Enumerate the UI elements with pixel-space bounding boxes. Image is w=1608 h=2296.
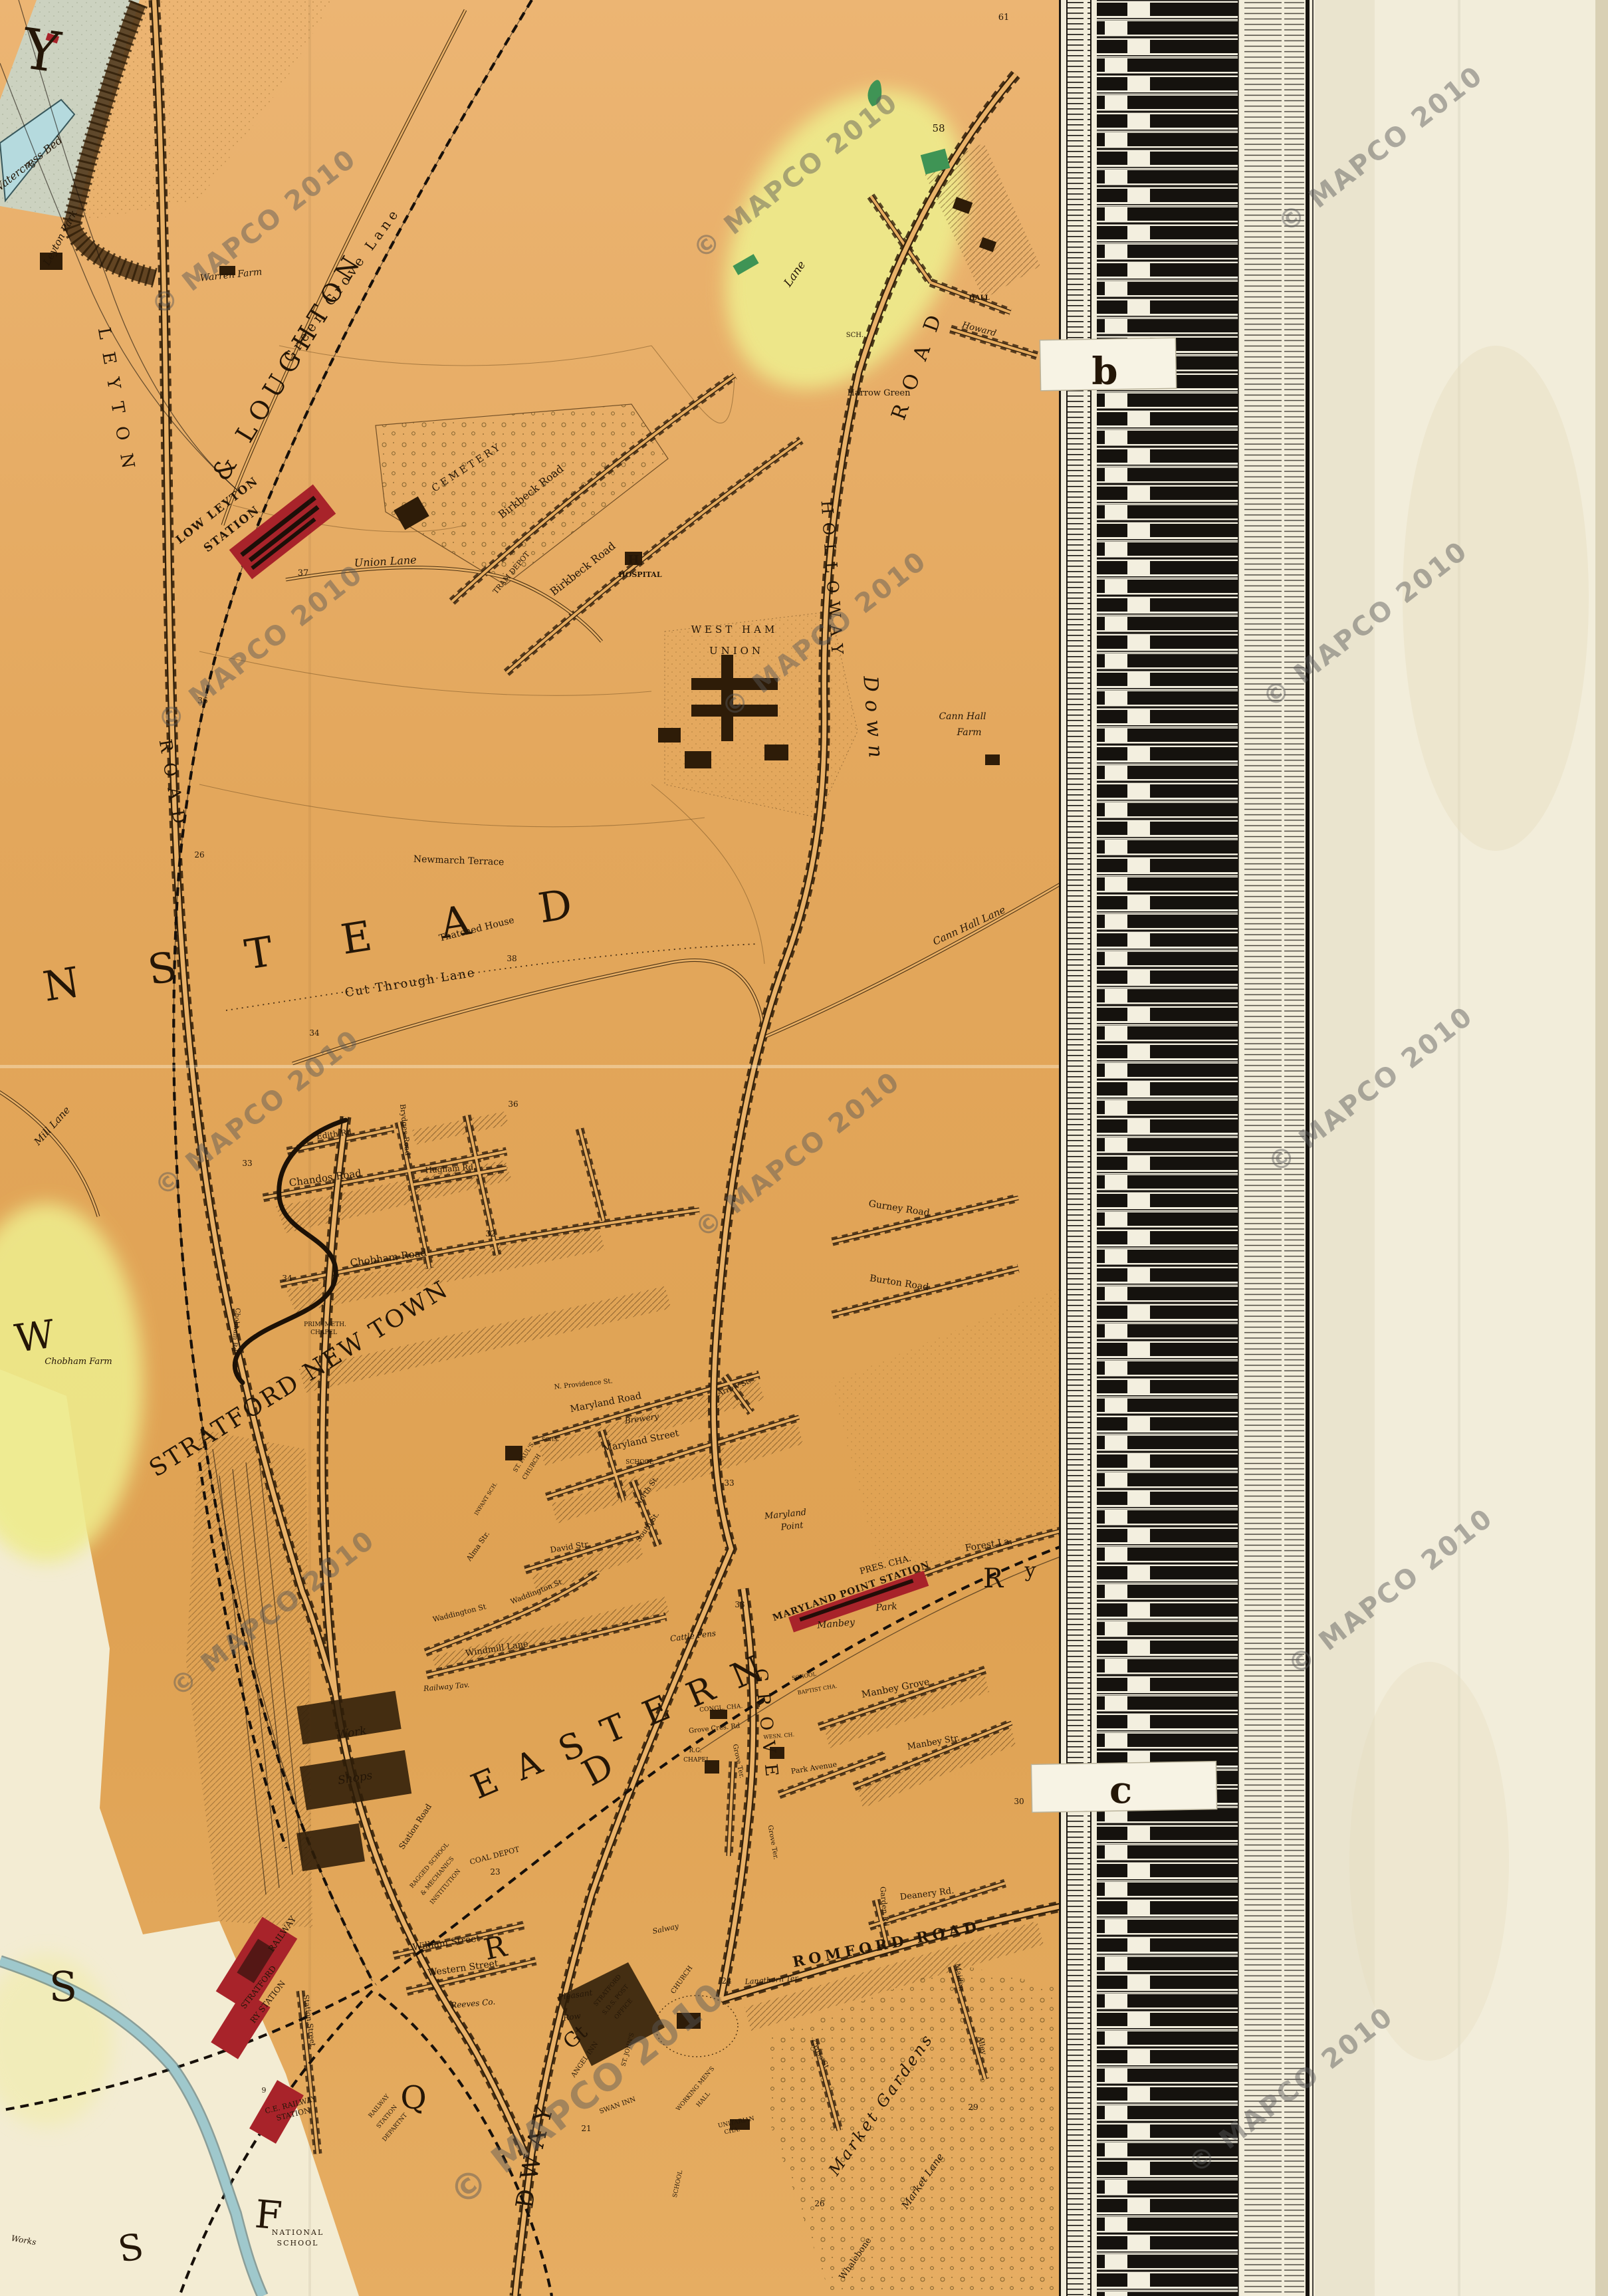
label-chobham-farm: Chobham Farm	[45, 1357, 112, 1367]
label-union: UNION	[709, 645, 764, 657]
num-30: 30	[1014, 1797, 1024, 1806]
grid-letter-c: c	[1109, 1768, 1132, 1812]
num-45: 45	[25, 160, 35, 170]
label-rc-2: CHAPEL	[683, 1757, 710, 1764]
num-58: 58	[932, 122, 945, 134]
num-24: 24	[721, 1976, 732, 1986]
num-38: 38	[507, 954, 517, 963]
label-rc-1: R.C.	[689, 1748, 701, 1754]
grid-tab-b: b	[1040, 338, 1176, 394]
label-park: Park	[875, 1601, 898, 1614]
num-33b: 33	[724, 1478, 734, 1488]
label-west-ham: WEST HAM	[691, 624, 778, 635]
label-hall: HALL	[969, 294, 989, 302]
grid-letter-b: b	[1091, 350, 1117, 394]
label-harrow-green: Harrow Green	[848, 388, 911, 398]
letter-s-upper: S	[49, 1962, 77, 2011]
num-21: 21	[581, 2124, 591, 2133]
num-26a: 26	[194, 850, 204, 860]
label-schs: SCHS.	[542, 1436, 559, 1442]
num-34b: 34	[282, 1274, 292, 1283]
label-cann-hall-1: Cann Hall	[939, 711, 986, 722]
map-canvas: WANSTEAD STRATFORD NEW TOWN EASTERN D Gt…	[0, 0, 1608, 2296]
map-base	[0, 0, 1059, 2296]
num-32: 32	[485, 1229, 495, 1238]
num-61: 61	[998, 13, 1010, 23]
cann-hall-farm-building	[985, 754, 1000, 765]
letter-q: Q	[400, 2079, 426, 2117]
label-hospital: HOSPITAL	[618, 570, 661, 579]
vertical-fold	[308, 0, 311, 2296]
num-36b: 36	[508, 1099, 518, 1109]
label-sch: SCH.	[846, 332, 863, 339]
label-national-1: NATIONAL	[272, 2228, 324, 2237]
num-29: 29	[968, 2103, 978, 2112]
label-cann-hall-2: Farm	[956, 727, 981, 738]
label-prim-2: CHAPEL	[310, 1329, 337, 1336]
num-9: 9	[262, 2086, 267, 2095]
hospital-h-icon: H	[628, 553, 639, 567]
num-23: 23	[490, 1867, 500, 1877]
horizontal-fold	[0, 1065, 1059, 1068]
letter-r-forest: R	[983, 1563, 1004, 1594]
letter-y-forest: y	[1024, 1559, 1036, 1582]
label-national-2: SCHOOL	[277, 2239, 319, 2247]
letter-w-west: W	[12, 1311, 58, 1361]
grid-tab-c: c	[1031, 1762, 1216, 1813]
num-33a: 33	[242, 1159, 252, 1168]
map-scan-page: WANSTEAD STRATFORD NEW TOWN EASTERN D Gt…	[0, 0, 1608, 2296]
num-33c: 33	[735, 1600, 745, 1609]
label-school-1: SCHOOL	[626, 1459, 653, 1466]
num-37: 37	[298, 568, 309, 578]
num-26b: 26	[814, 2199, 824, 2208]
